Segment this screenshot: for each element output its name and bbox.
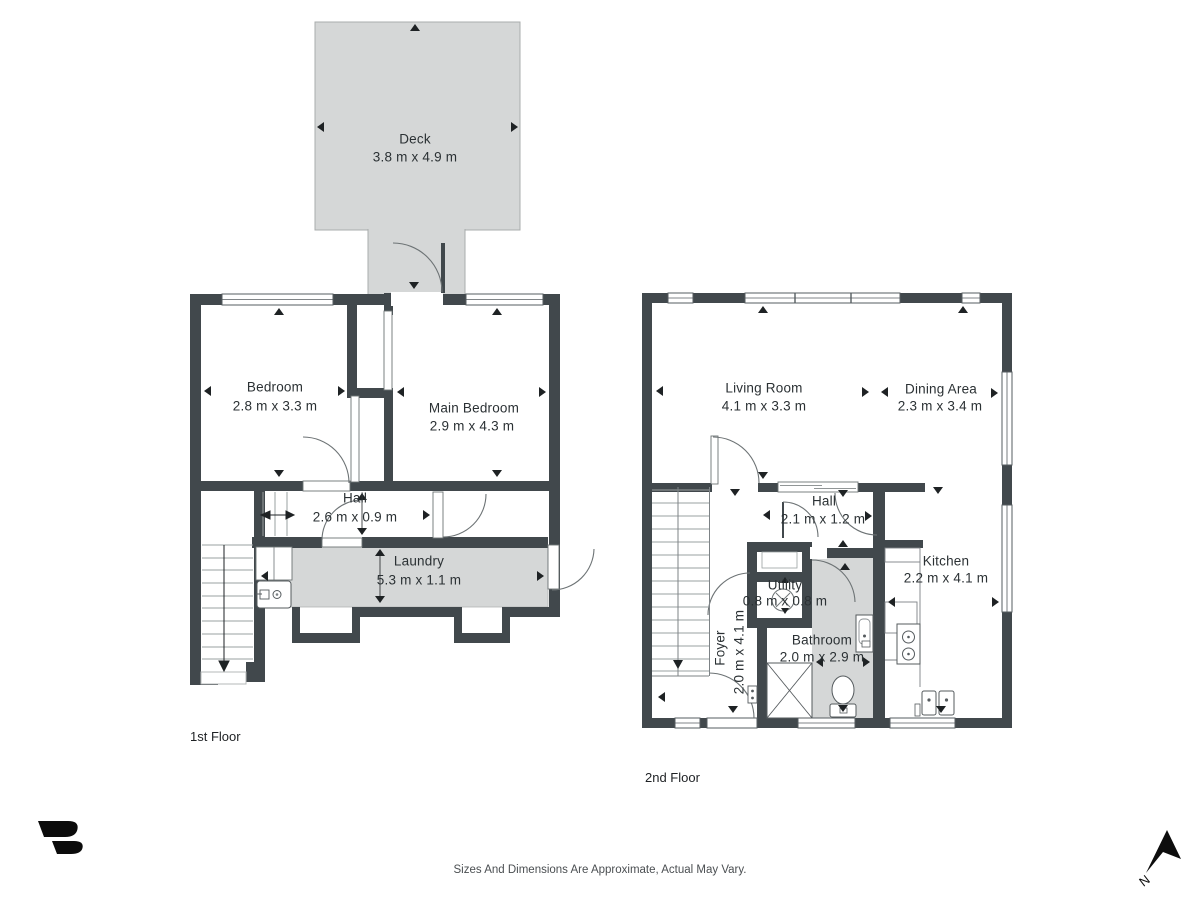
room-dims-hall-2f: 2.1 m x 1.2 m bbox=[781, 512, 865, 527]
kitchen-sink-icon bbox=[915, 691, 954, 716]
room-dims-hall-1f: 2.6 m x 0.9 m bbox=[313, 510, 397, 525]
laundry-exterior-door-leaf bbox=[548, 545, 559, 589]
room-dims-deck: 3.8 m x 4.9 m bbox=[373, 150, 457, 165]
entry-door-threshold bbox=[707, 718, 757, 728]
room-label-bedroom: Bedroom bbox=[247, 380, 303, 395]
first-floor-walls bbox=[190, 293, 560, 685]
room-dims-utility: 0.8 m x 0.8 m bbox=[743, 594, 827, 609]
stove-icon bbox=[897, 624, 920, 664]
room-label-living-room: Living Room bbox=[725, 381, 802, 396]
room-label-laundry: Laundry bbox=[394, 554, 444, 569]
compass-label: N bbox=[1136, 872, 1153, 890]
first-floor-fixtures bbox=[256, 547, 292, 608]
room-label-kitchen: Kitchen bbox=[923, 554, 969, 569]
room-label-dining-area: Dining Area bbox=[905, 382, 977, 397]
hall-door-leaf bbox=[433, 492, 443, 538]
floor-label-2nd: 2nd Floor bbox=[645, 770, 700, 785]
floorplan-canvas: N bbox=[0, 0, 1200, 900]
bedroom-door-leaf bbox=[303, 481, 350, 491]
compass-north-icon: N bbox=[1136, 830, 1181, 890]
bathroom-door-opening bbox=[810, 547, 827, 559]
laundry-door-leaf bbox=[322, 538, 362, 547]
room-dims-laundry: 5.3 m x 1.1 m bbox=[377, 573, 461, 588]
floorplan-page: N Deck 3.8 m x 4.9 m Bedroom 2.8 m x 3.3… bbox=[0, 0, 1200, 900]
room-dims-main-bedroom: 2.9 m x 4.3 m bbox=[430, 419, 514, 434]
room-label-deck: Deck bbox=[399, 132, 431, 147]
room-label-hall-1f: Hall bbox=[343, 491, 367, 506]
room-label-bathroom: Bathroom bbox=[792, 633, 852, 648]
floor-label-1st: 1st Floor bbox=[190, 729, 241, 744]
room-label-hall-2f: Hall bbox=[812, 494, 836, 509]
kitchen-counter bbox=[885, 548, 920, 687]
room-dims-dining-area: 2.3 m x 3.4 m bbox=[898, 399, 982, 414]
room-dims-living-room: 4.1 m x 3.3 m bbox=[722, 399, 806, 414]
room-label-utility: Utility bbox=[768, 578, 802, 593]
room-label-foyer: Foyer bbox=[713, 630, 728, 666]
brand-logo-icon bbox=[38, 821, 83, 854]
living-room-door-leaf bbox=[711, 436, 718, 484]
room-dims-bedroom: 2.8 m x 3.3 m bbox=[233, 399, 317, 414]
room-dims-bathroom: 2.0 m x 2.9 m bbox=[780, 650, 864, 665]
closet-sliding-door bbox=[384, 311, 392, 390]
room-label-main-bedroom: Main Bedroom bbox=[429, 401, 519, 416]
closet-sliding-door bbox=[351, 396, 359, 482]
room-dims-kitchen: 2.2 m x 4.1 m bbox=[904, 571, 988, 586]
bath-sink-icon bbox=[856, 615, 873, 652]
room-dims-foyer: 2.0 m x 4.1 m bbox=[732, 610, 747, 694]
hall-closet bbox=[762, 552, 797, 568]
stair-down-arrow bbox=[673, 660, 683, 669]
disclaimer-text: Sizes And Dimensions Are Approximate, Ac… bbox=[454, 864, 747, 876]
washer-icon bbox=[256, 581, 291, 608]
second-floor-stairs-icon bbox=[652, 487, 710, 676]
